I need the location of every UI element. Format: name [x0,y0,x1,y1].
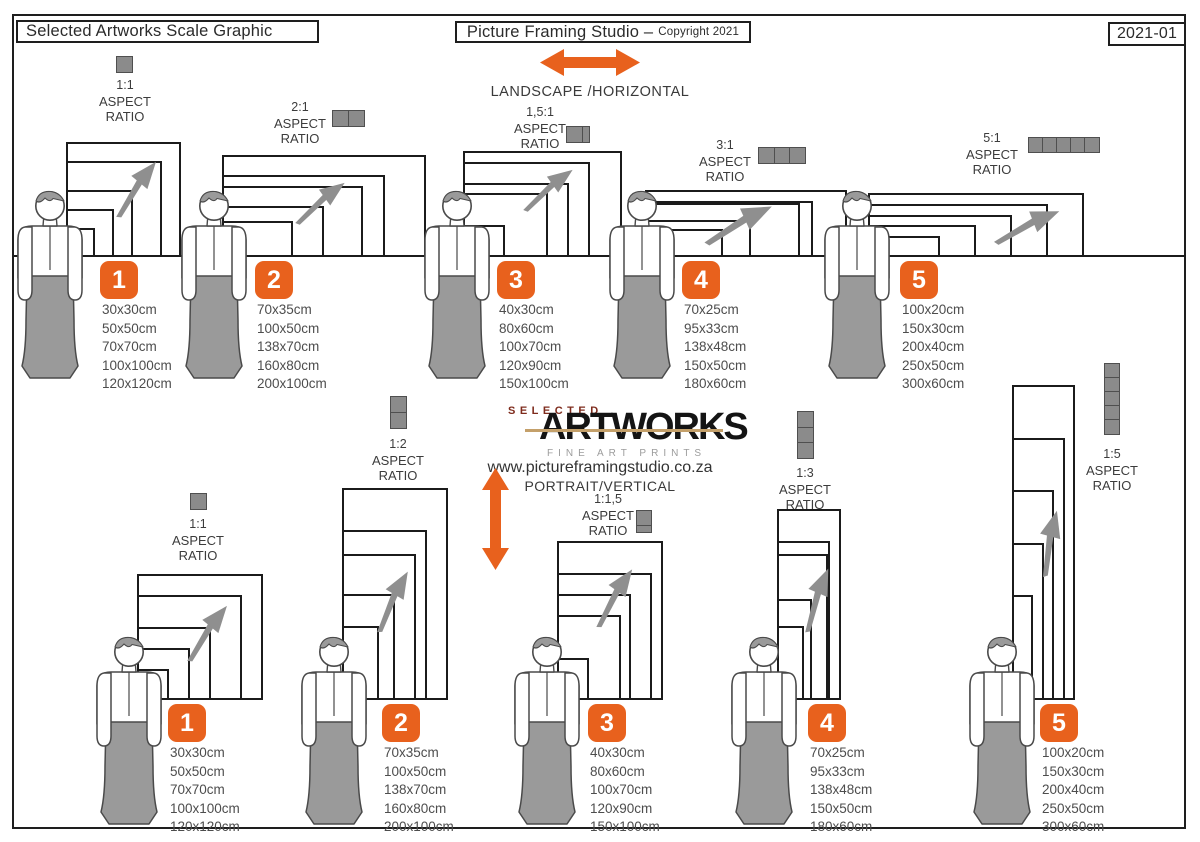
size-item: 100x70cm [590,781,660,800]
size-item: 120x120cm [170,818,240,837]
logo-strike-line [525,429,723,432]
aspect-ratio-icon-cell [582,126,591,143]
size-item: 30x30cm [170,744,240,763]
group-number-badge: 1 [168,704,206,742]
person-figure [962,636,1042,828]
group-number-badge: 5 [1040,704,1078,742]
size-item: 50x50cm [102,320,172,339]
group-number-badge: 2 [382,704,420,742]
size-item: 100x50cm [384,763,454,782]
aspect-ratio-value: 1:1,5 [548,492,668,508]
size-item: 150x100cm [499,375,569,394]
poster-title: Selected Artworks Scale Graphic [26,22,272,41]
logo-artworks-text: ARTWORKS [539,408,747,446]
aspect-ratio-icon-cell [1104,419,1120,435]
aspect-word: RATIO [338,468,458,484]
size-item: 180x60cm [810,818,872,837]
header-left-box: Selected Artworks Scale Graphic [16,20,319,43]
group-number-badge: 1 [100,261,138,299]
size-item: 100x20cm [902,301,964,320]
header-center-box: Picture Framing Studio – Copyright 2021 [455,21,751,43]
aspect-word: RATIO [65,109,185,125]
aspect-ratio-value: 1:5 [1052,447,1172,463]
aspect-ratio-icon [1104,363,1120,435]
size-item: 160x80cm [257,357,327,376]
person-figure [89,636,169,828]
doc-number: 2021-01 [1117,25,1177,43]
size-item: 100x100cm [102,357,172,376]
size-item: 200x100cm [257,375,327,394]
aspect-word: ASPECT [65,94,185,110]
group-number-badge: 4 [808,704,846,742]
aspect-ratio-icon-cell [789,147,806,164]
aspect-ratio-icon-cell [390,412,407,429]
person-figure [294,636,374,828]
landscape-arrow-icon [540,47,640,83]
size-item: 95x33cm [684,320,746,339]
aspect-ratio-label: 1:2ASPECTRATIO [338,437,458,484]
size-item: 120x90cm [590,800,660,819]
size-item: 150x50cm [810,800,872,819]
size-item: 40x30cm [499,301,569,320]
group-number-badge: 3 [588,704,626,742]
size-item: 150x30cm [902,320,964,339]
size-item: 150x50cm [684,357,746,376]
size-item: 180x60cm [684,375,746,394]
aspect-ratio-icon-cell [774,147,791,164]
aspect-ratio-icon [116,56,133,73]
aspect-ratio-icon [332,110,365,127]
size-list: 40x30cm80x60cm100x70cm120x90cm150x100cm [499,301,569,394]
group-number-badge: 2 [255,261,293,299]
size-list: 70x25cm95x33cm138x48cm150x50cm180x60cm [810,744,872,837]
aspect-word: ASPECT [745,482,865,498]
size-item: 160x80cm [384,800,454,819]
aspect-ratio-value: 1:3 [745,466,865,482]
aspect-ratio-icon-cell [1084,137,1100,153]
aspect-ratio-icon [1028,137,1100,153]
aspect-word: ASPECT [1052,463,1172,479]
size-item: 300x60cm [902,375,964,394]
aspect-word: ASPECT [338,453,458,469]
size-item: 100x100cm [170,800,240,819]
aspect-ratio-icon-cell [797,442,814,459]
person-figure [817,190,897,382]
size-item: 70x25cm [810,744,872,763]
size-list: 40x30cm80x60cm100x70cm120x90cm150x100cm [590,744,660,837]
size-list: 70x25cm95x33cm138x48cm150x50cm180x60cm [684,301,746,394]
aspect-ratio-icon-cell [797,411,814,428]
size-item: 300x60cm [1042,818,1104,837]
size-item: 30x30cm [102,301,172,320]
size-item: 80x60cm [499,320,569,339]
aspect-ratio-icon-cell [190,493,207,510]
size-item: 150x30cm [1042,763,1104,782]
aspect-ratio-icon-cell [636,525,652,533]
aspect-ratio-icon [797,411,814,459]
size-item: 95x33cm [810,763,872,782]
person-figure [10,190,90,382]
aspect-word: RATIO [665,169,785,185]
aspect-ratio-value: 1,5:1 [480,105,600,121]
size-item: 50x50cm [170,763,240,782]
group-number-badge: 4 [682,261,720,299]
logo-fine-art-prints-text: FINE ART PRINTS [547,448,706,459]
aspect-ratio-icon [390,396,407,429]
size-item: 40x30cm [590,744,660,763]
logo-block: SELECTED ARTWORKS FINE ART PRINTS [505,402,755,462]
header-right-box: 2021-01 [1108,22,1186,46]
studio-name: Picture Framing Studio – [467,23,653,42]
size-item: 200x40cm [902,338,964,357]
aspect-ratio-icon-cell [758,147,775,164]
group-number-badge: 5 [900,261,938,299]
aspect-ratio-icon-cell [332,110,349,127]
aspect-ratio-icon [636,510,652,533]
aspect-ratio-value: 1:2 [338,437,458,453]
size-item: 100x70cm [499,338,569,357]
size-item: 70x35cm [384,744,454,763]
group-number-badge: 3 [497,261,535,299]
size-item: 70x35cm [257,301,327,320]
size-list: 30x30cm50x50cm70x70cm100x100cm120x120cm [102,301,172,394]
size-item: 138x48cm [684,338,746,357]
person-figure [417,190,497,382]
portrait-arrow-icon [480,468,511,575]
size-item: 138x70cm [257,338,327,357]
size-item: 250x50cm [1042,800,1104,819]
aspect-ratio-value: 1:1 [65,78,185,94]
aspect-ratio-icon-cell [390,396,407,413]
person-figure [507,636,587,828]
poster-canvas: Selected Artworks Scale Graphic Picture … [0,0,1200,842]
aspect-word: RATIO [745,497,865,513]
size-item: 70x25cm [684,301,746,320]
aspect-ratio-icon-cell [348,110,365,127]
person-figure [602,190,682,382]
aspect-word: RATIO [240,131,360,147]
size-item: 100x20cm [1042,744,1104,763]
size-item: 70x70cm [170,781,240,800]
size-item: 200x40cm [1042,781,1104,800]
aspect-word: RATIO [1052,478,1172,494]
size-list: 70x35cm100x50cm138x70cm160x80cm200x100cm [257,301,327,394]
person-figure [174,190,254,382]
aspect-ratio-icon-cell [116,56,133,73]
aspect-ratio-label: 1:1ASPECTRATIO [65,78,185,125]
aspect-ratio-label: 1:3ASPECTRATIO [745,466,865,513]
landscape-section-title: LANDSCAPE /HORIZONTAL [440,84,740,100]
aspect-word: RATIO [932,162,1052,178]
size-list: 70x35cm100x50cm138x70cm160x80cm200x100cm [384,744,454,837]
size-item: 138x70cm [384,781,454,800]
size-item: 250x50cm [902,357,964,376]
size-item: 150x100cm [590,818,660,837]
size-list: 30x30cm50x50cm70x70cm100x100cm120x120cm [170,744,240,837]
aspect-ratio-label: 1:5ASPECTRATIO [1052,447,1172,494]
aspect-ratio-icon-cell [797,427,814,444]
size-item: 100x50cm [257,320,327,339]
size-item: 138x48cm [810,781,872,800]
size-item: 80x60cm [590,763,660,782]
aspect-ratio-icon [190,493,207,510]
aspect-ratio-icon [758,147,806,164]
size-item: 120x90cm [499,357,569,376]
aspect-ratio-label: 1:1ASPECTRATIO [138,517,258,564]
aspect-word: ASPECT [138,533,258,549]
size-list: 100x20cm150x30cm200x40cm250x50cm300x60cm [1042,744,1104,837]
aspect-ratio-value: 1:1 [138,517,258,533]
aspect-ratio-icon-cell [566,126,583,143]
size-item: 70x70cm [102,338,172,357]
aspect-word: RATIO [138,548,258,564]
size-item: 200x100cm [384,818,454,837]
copyright-text: Copyright 2021 [658,26,739,38]
size-item: 120x120cm [102,375,172,394]
size-list: 100x20cm150x30cm200x40cm250x50cm300x60cm [902,301,964,394]
person-figure [724,636,804,828]
aspect-ratio-icon [566,126,590,143]
